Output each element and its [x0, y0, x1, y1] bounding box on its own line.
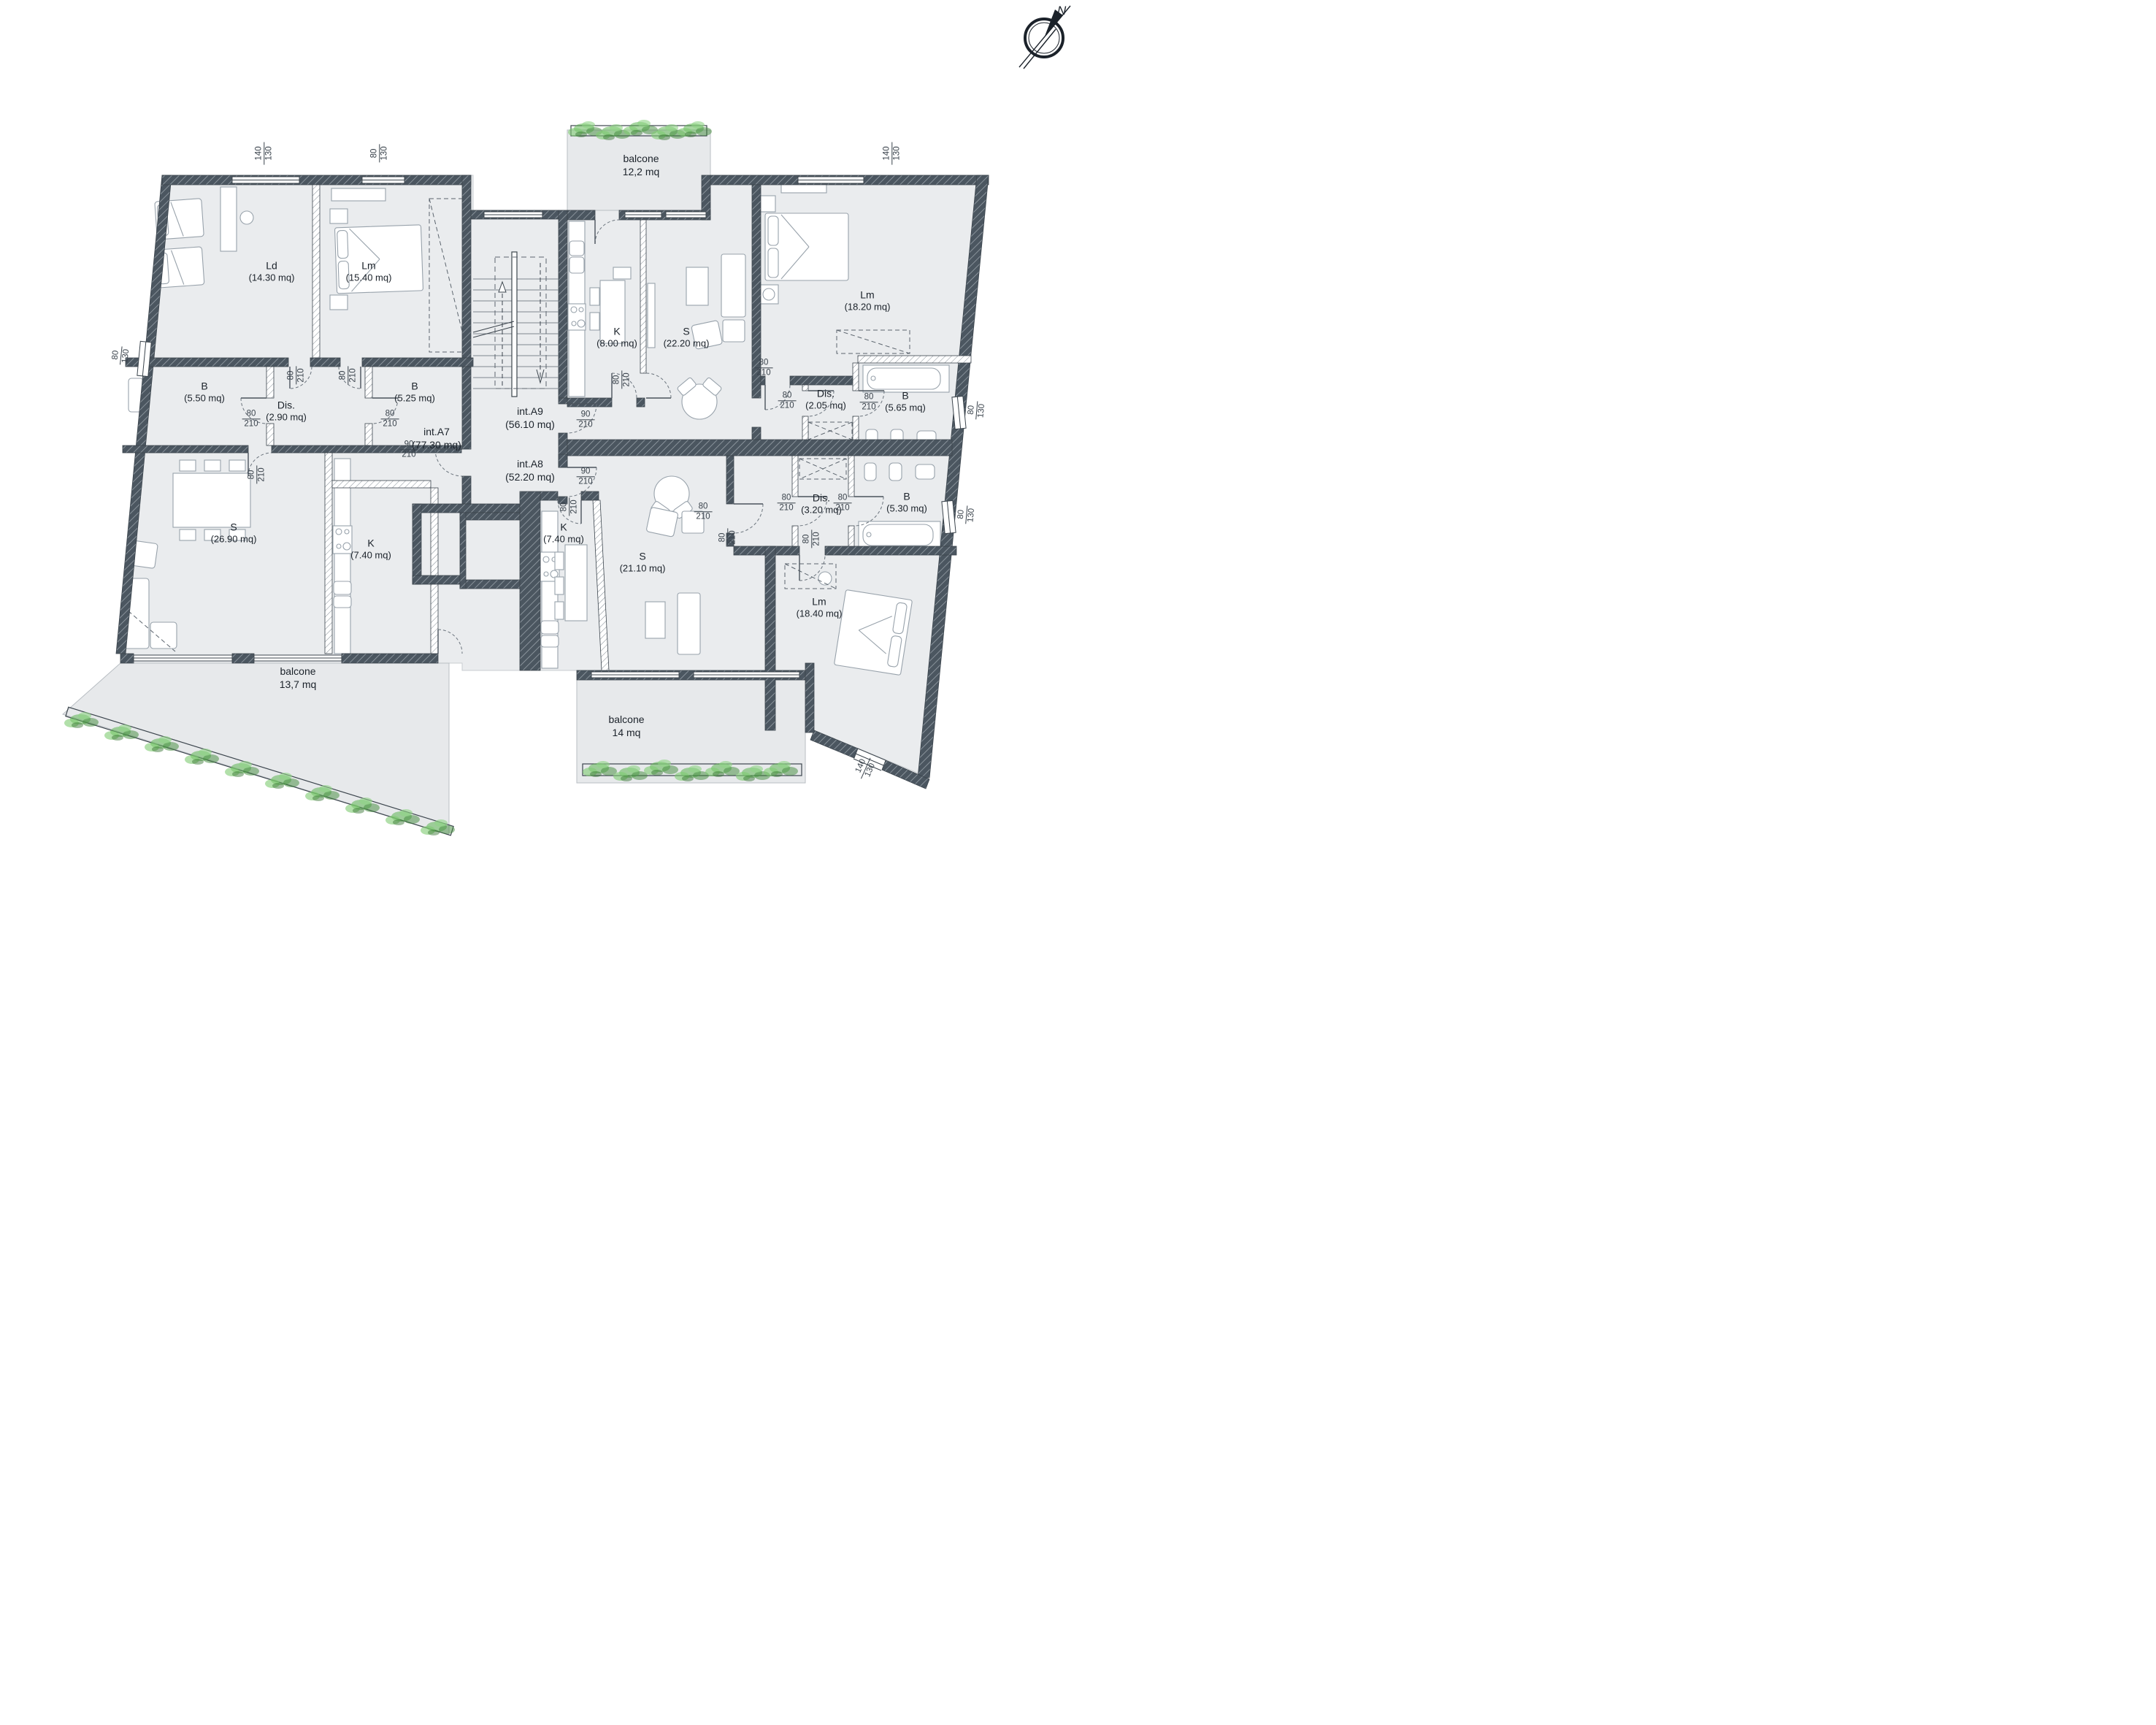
coffee-table	[645, 602, 665, 638]
double-bed-a7	[334, 225, 423, 294]
sofa	[721, 254, 745, 317]
sofa-seat	[723, 320, 745, 342]
sink	[541, 621, 559, 634]
window	[666, 212, 706, 218]
party-wall	[567, 440, 952, 456]
north-arrow: N	[1019, 4, 1070, 69]
window	[362, 177, 404, 183]
sink	[569, 241, 584, 256]
dresser	[331, 188, 385, 201]
sofa-seat	[150, 622, 177, 649]
armchair	[691, 320, 723, 349]
window	[232, 177, 299, 183]
window	[484, 212, 542, 218]
balcony-left-floor	[63, 663, 449, 835]
window-door	[254, 655, 342, 661]
sofa-seat	[682, 511, 704, 533]
sink	[334, 581, 351, 594]
window	[625, 212, 661, 218]
tv-bench	[648, 283, 655, 348]
shaft-wall	[520, 492, 540, 670]
floor-plan-drawing: N	[0, 0, 1078, 862]
sofa	[678, 593, 700, 654]
window-door	[591, 672, 679, 678]
toilet	[889, 463, 902, 481]
north-label: N	[1057, 4, 1067, 18]
exterior-wall-bottom-a7	[342, 654, 438, 663]
desk	[220, 187, 237, 251]
coffee-table	[686, 267, 708, 305]
wash-basin	[916, 464, 935, 479]
kitchen-table	[565, 545, 587, 621]
balcony-top-floor	[567, 130, 710, 210]
nightstand	[330, 295, 348, 310]
kitchen-table	[600, 280, 625, 343]
window-door	[694, 672, 799, 678]
bidet	[864, 463, 876, 481]
floor-plan: N Ld(14.30 mq)Lm(15.40 mq)B(5.50 mq)Dis.…	[0, 0, 1078, 862]
double-bed-a8	[834, 589, 912, 675]
double-bed-a9	[765, 213, 848, 280]
window-door	[134, 655, 232, 661]
exterior-wall-top-a7	[162, 175, 471, 185]
window	[798, 177, 864, 183]
armchair	[646, 507, 678, 537]
stool	[240, 211, 253, 224]
nightstand	[330, 209, 348, 223]
stair-stringer	[512, 252, 517, 397]
dining-table	[173, 473, 250, 527]
